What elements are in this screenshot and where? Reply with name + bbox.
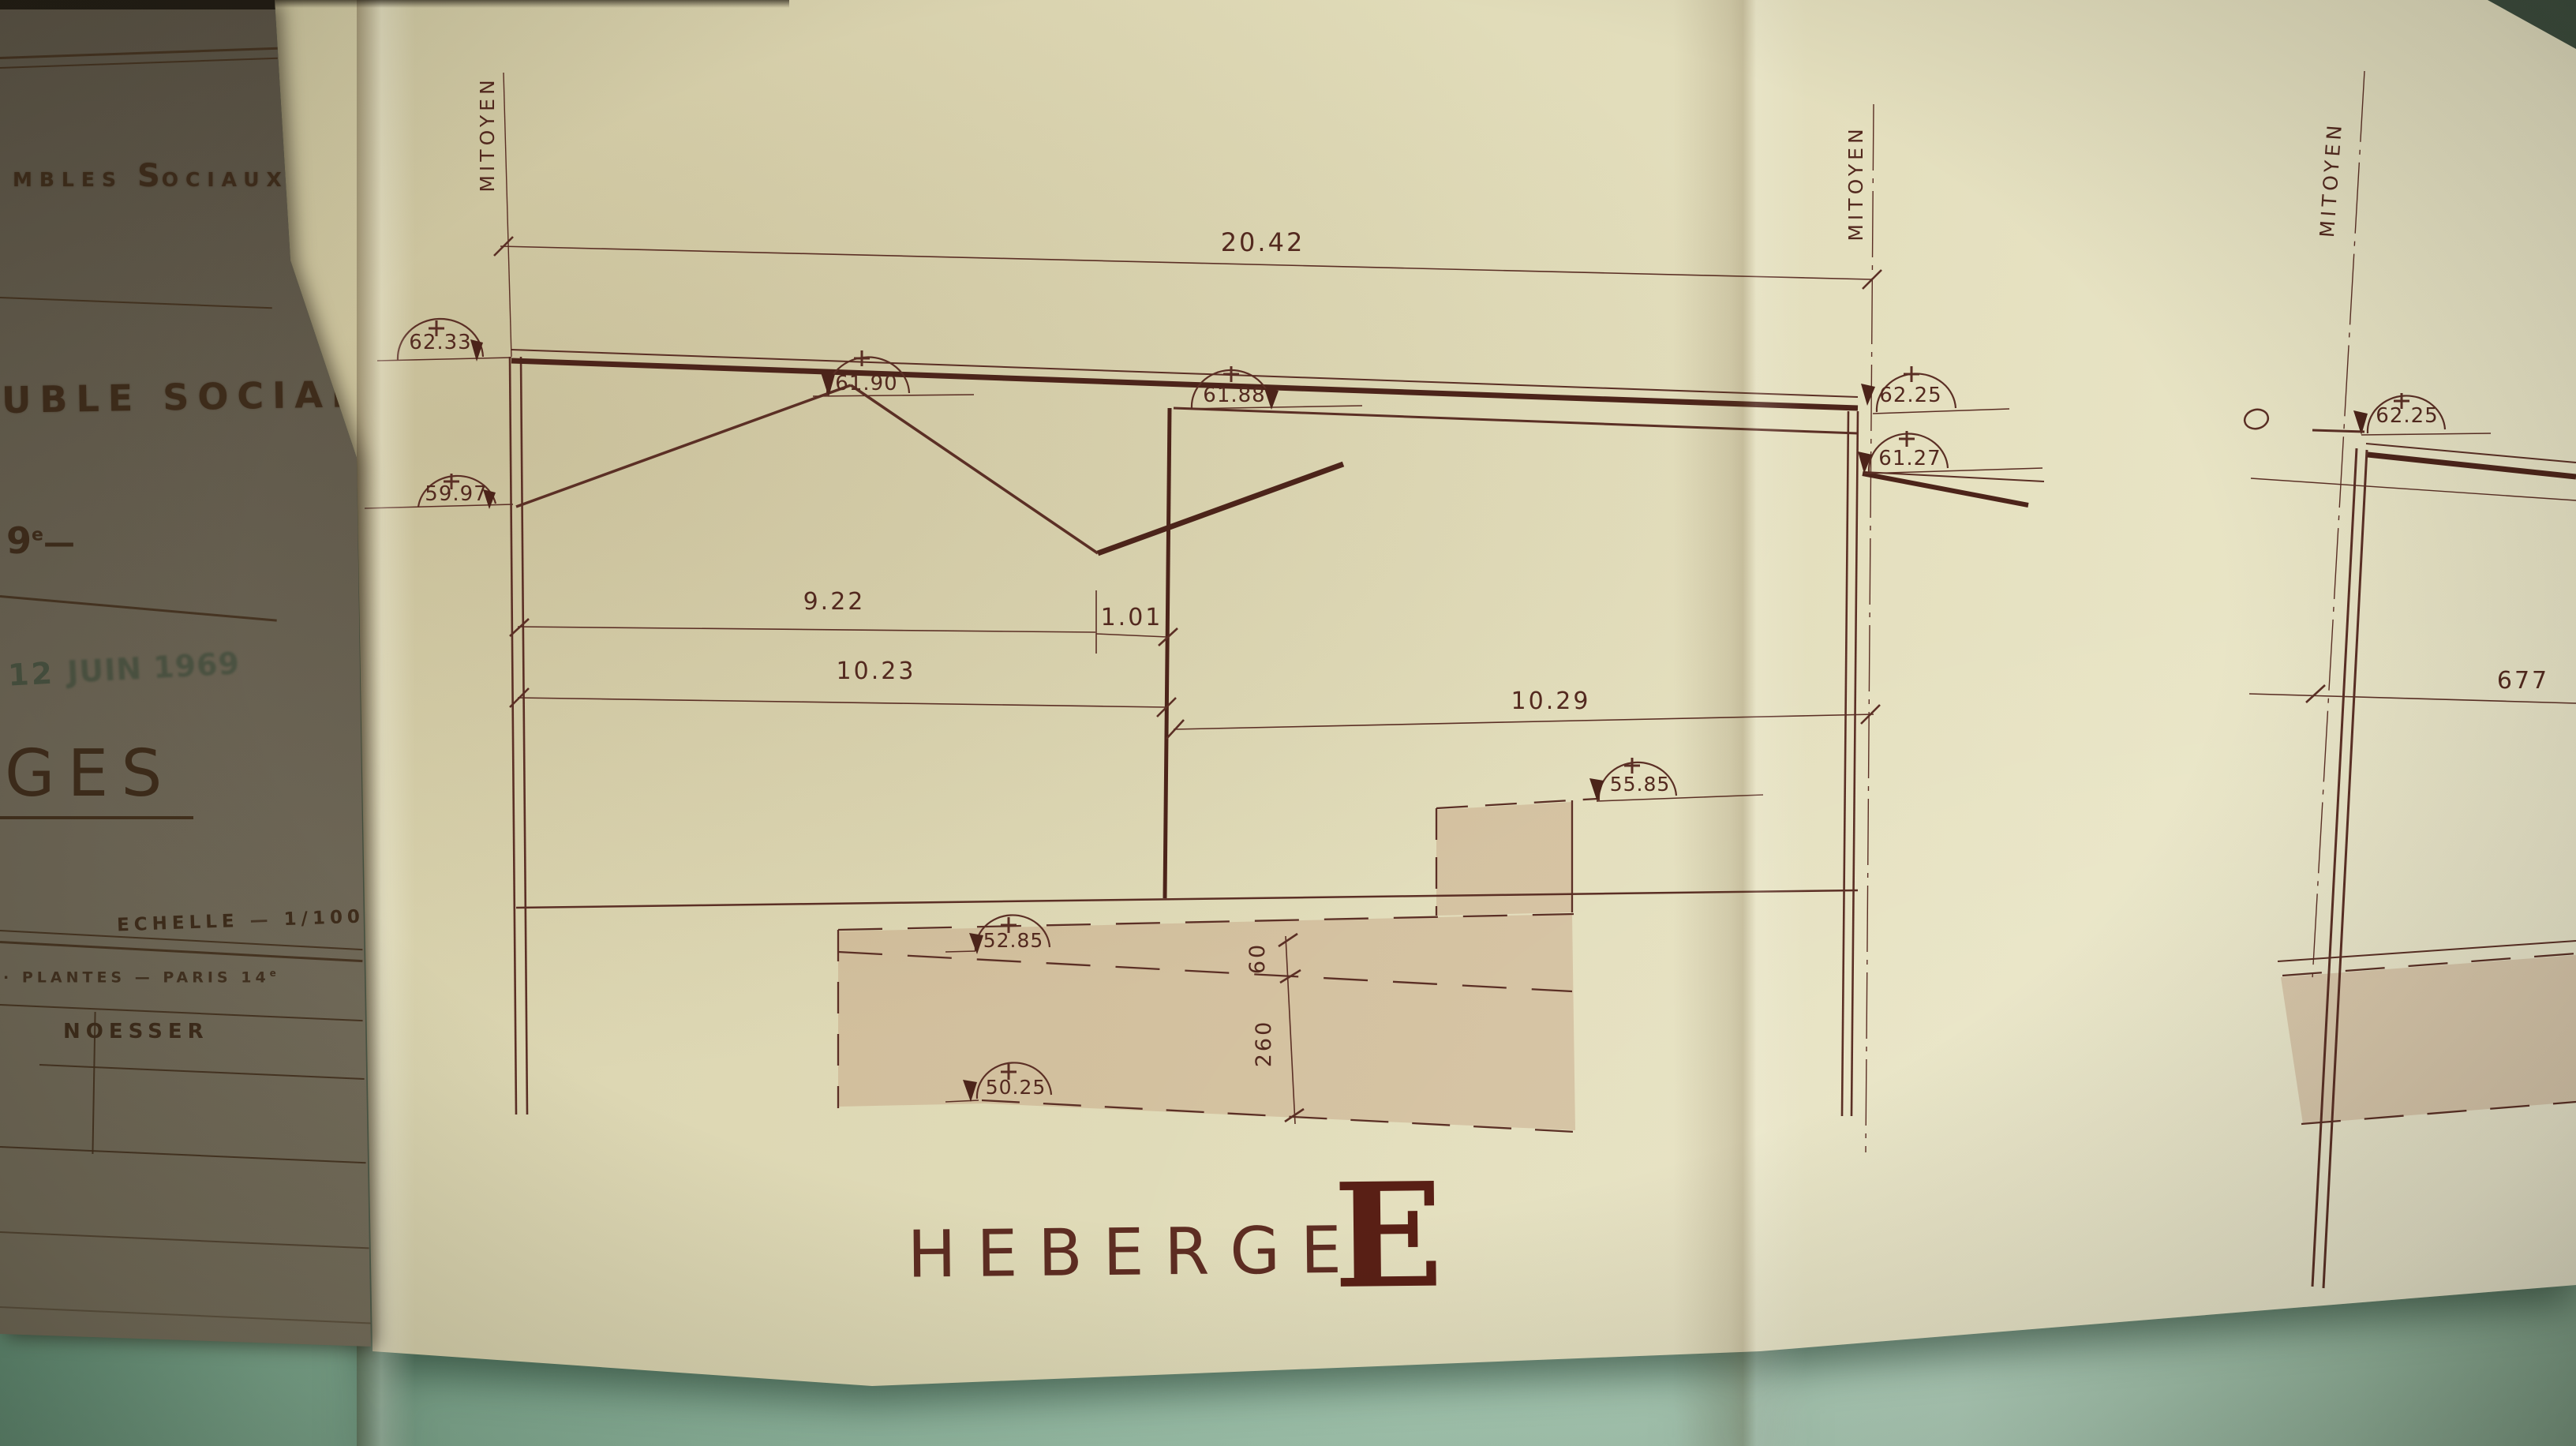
district-sup: e xyxy=(32,526,43,545)
panel-rule-mid xyxy=(0,297,272,309)
panel-text-district: 9e— xyxy=(6,519,75,562)
panel-rule-lower-3 xyxy=(0,1306,371,1324)
panel-top-shadow xyxy=(0,0,278,9)
panel-rule-name xyxy=(39,1064,365,1080)
scale-sep: — xyxy=(249,910,273,931)
address-text: PLANTES — PARIS 14 xyxy=(22,968,270,986)
panel-address: · PLANTES — PARIS 14e xyxy=(3,968,280,986)
stamp-rest: JUIN 1969 xyxy=(66,646,241,689)
panel-rule-above-stamp xyxy=(0,595,277,622)
social-big-s: S xyxy=(137,158,162,194)
photo-of-architectural-drawing: 62.33 59.97 61.90 xyxy=(0,0,2576,1446)
panel-rule-lower-2 xyxy=(0,1231,369,1249)
panel-rule-top-b xyxy=(0,58,278,69)
social-fragment: MBLES xyxy=(13,168,123,191)
stamp-day: 12 xyxy=(7,656,55,693)
panel-scale: ECHELLE — 1/100 xyxy=(117,907,365,936)
address-sup: e xyxy=(270,968,280,979)
district-dash: — xyxy=(43,525,75,561)
date-stamp: 12 JUIN 1969 xyxy=(7,646,241,692)
architect-name: NOESSER xyxy=(63,1020,209,1043)
panel-rule-top-a xyxy=(0,47,278,59)
panel-text-heberges-fragment: GES xyxy=(0,736,193,819)
panel-rule-address xyxy=(0,1004,363,1021)
panel-text-building: UBLE SOCIAL xyxy=(2,373,364,421)
district-number: 9 xyxy=(6,519,32,562)
scale-label: ECHELLE xyxy=(117,911,239,935)
scale-value: 1/100 xyxy=(283,907,365,931)
address-prefix: · xyxy=(3,968,13,986)
panel-text-social: MBLES S OCIAUX xyxy=(13,158,289,194)
panel-rule-scale-b xyxy=(0,941,362,962)
folded-cover-panel: MBLES S OCIAUX UBLE SOCIAL 9e— 12 JUIN 1… xyxy=(0,0,2576,1446)
cover-panel-background: MBLES S OCIAUX UBLE SOCIAL 9e— 12 JUIN 1… xyxy=(0,0,2576,1446)
social-fragment-2: OCIAUX xyxy=(162,168,289,191)
panel-rule-lower-1 xyxy=(0,1146,366,1163)
